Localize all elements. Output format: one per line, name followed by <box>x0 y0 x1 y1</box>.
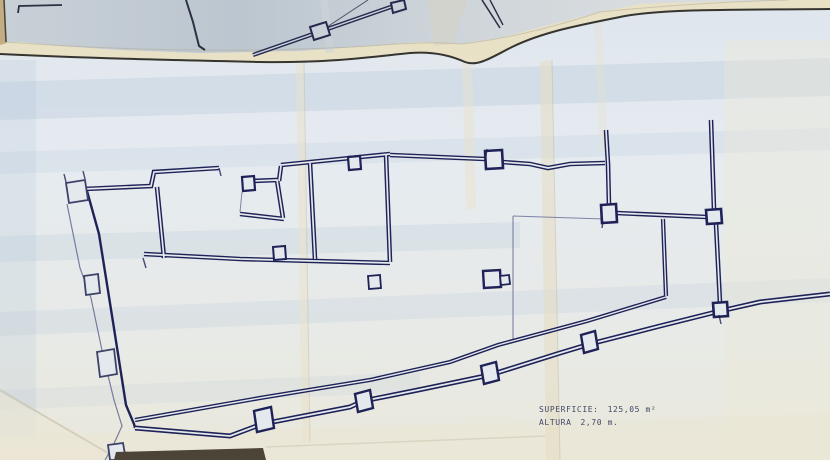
boundary-post <box>254 407 274 432</box>
column-square <box>242 176 255 191</box>
altura-row: ALTURA2,70 m. <box>539 416 656 429</box>
column-square <box>273 246 286 260</box>
superficie-row: SUPERFICIE:125,05 m² <box>539 403 656 416</box>
altura-label: ALTURA <box>539 418 572 427</box>
column-square <box>348 156 361 170</box>
boundary-post <box>97 349 117 377</box>
plan-annotations: SUPERFICIE:125,05 m² ALTURA2,70 m. <box>539 403 656 429</box>
column-with-tick <box>483 270 501 288</box>
column-square <box>485 150 503 169</box>
boundary-post <box>66 180 88 203</box>
altura-value: 2,70 m. <box>581 418 619 427</box>
tick <box>486 149 487 156</box>
column-square <box>713 302 728 317</box>
column-tick-square <box>500 275 510 285</box>
blueprint-photo: SUPERFICIE:125,05 m² ALTURA2,70 m. <box>0 0 830 460</box>
small-square <box>368 275 381 289</box>
cream-area <box>724 40 830 460</box>
boundary-post <box>481 362 499 384</box>
boundary-post <box>84 274 100 295</box>
tick <box>602 221 603 228</box>
superficie-label: SUPERFICIE: <box>539 405 599 414</box>
column-square <box>601 204 617 223</box>
boundary-post <box>581 331 598 353</box>
column-square <box>706 209 722 224</box>
blueprint-drawing <box>0 0 830 460</box>
superficie-value: 125,05 m² <box>608 405 657 414</box>
blue-band <box>0 60 36 440</box>
boundary-post <box>355 390 373 412</box>
